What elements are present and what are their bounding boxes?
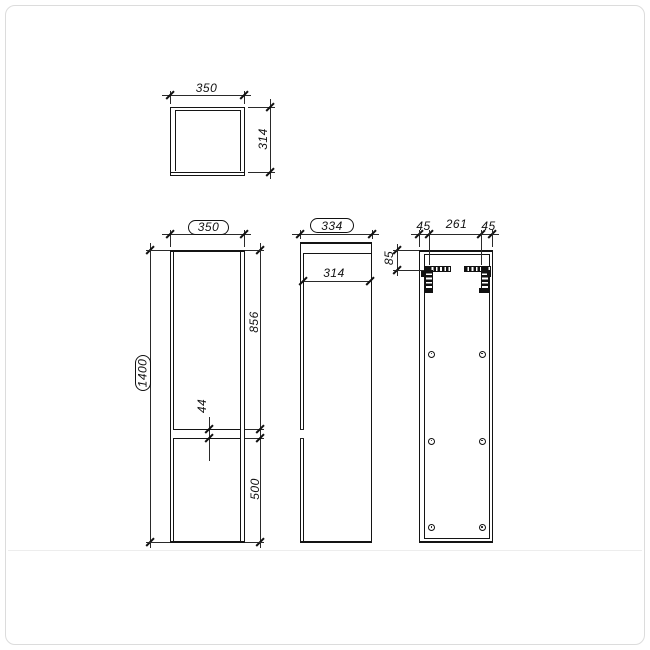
back-view: 45 261 45 85 <box>0 0 650 650</box>
extension-line <box>393 250 419 251</box>
screw-hole <box>428 524 435 531</box>
back-panel-inner-line <box>424 254 425 539</box>
mounting-bracket-right-hook <box>487 270 491 277</box>
dim-label-bracket-right-offset: 45 <box>481 219 495 233</box>
extension-line <box>393 270 425 271</box>
back-bottom-edge <box>419 541 494 543</box>
back-panel-inner-line <box>489 254 490 539</box>
screw-hole <box>428 438 435 445</box>
back-right-edge <box>492 250 494 543</box>
dim-label-bracket-left-offset: 45 <box>416 219 430 233</box>
mounting-bracket-left-foot <box>424 288 434 293</box>
back-left-edge <box>419 250 421 543</box>
mounting-bracket-left-hook <box>421 270 425 277</box>
screw-hole <box>479 524 486 531</box>
screw-hole <box>428 351 435 358</box>
extension-line <box>481 230 482 265</box>
screw-hole <box>479 438 486 445</box>
technical-drawing-cabinet: 350 314 350 1400 <box>0 0 650 650</box>
mounting-bracket-right-foot <box>479 288 489 293</box>
back-panel-inner-line <box>424 538 490 539</box>
back-panel-inner-line <box>424 254 490 255</box>
dim-label-bracket-top-offset: 85 <box>382 250 396 264</box>
image-bottom-divider <box>8 550 642 551</box>
screw-hole <box>479 351 486 358</box>
extension-line <box>429 230 430 265</box>
dim-label-bracket-span: 261 <box>446 217 468 231</box>
dimension-line <box>411 234 499 235</box>
